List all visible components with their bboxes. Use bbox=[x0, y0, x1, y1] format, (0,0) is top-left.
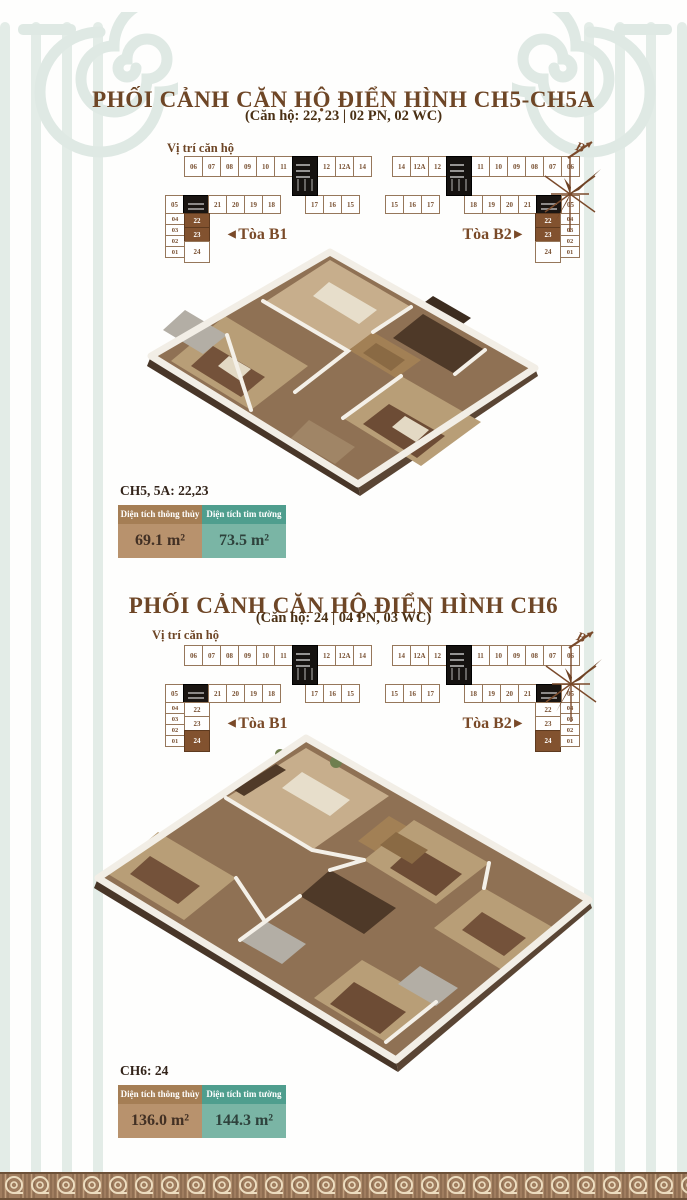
unit-cell-17: 17 bbox=[305, 195, 324, 214]
unit-cell-10: 10 bbox=[489, 645, 508, 666]
area-info-header: CH6: 24 bbox=[120, 1063, 288, 1079]
gross-area-column: Diện tích tim tường 73.5 m² bbox=[202, 505, 286, 558]
plate-row2-left: 21201918 bbox=[209, 196, 281, 214]
stair-core-icon bbox=[183, 195, 209, 214]
unit-cell-19: 19 bbox=[482, 195, 501, 214]
plate-row1-left: 060708091011 bbox=[185, 156, 293, 177]
plate-row1-left: 1412A12 bbox=[393, 645, 447, 666]
unit-cell-15: 15 bbox=[385, 684, 404, 703]
unit-cell-23: 23 bbox=[184, 227, 210, 242]
elevator-core-icon bbox=[292, 156, 318, 196]
gross-area-label: Diện tích tim tường bbox=[202, 1085, 286, 1104]
brochure-page: PHỐI CẢNH CĂN HỘ ĐIỂN HÌNH CH5-CH5A (Căn… bbox=[0, 0, 687, 1200]
unit-cell-12: 12 bbox=[428, 645, 447, 666]
unit-cell-19: 19 bbox=[482, 684, 501, 703]
core-shaft bbox=[280, 685, 306, 704]
unit-cell-20: 20 bbox=[226, 195, 245, 214]
elevator-core-icon bbox=[446, 156, 472, 196]
plate-row2-start: 05 bbox=[166, 196, 184, 214]
unit-cell-16: 16 bbox=[323, 195, 342, 214]
unit-cell-06: 06 bbox=[184, 156, 203, 177]
net-area-label: Diện tích thông thủy bbox=[118, 505, 202, 524]
unit-cell-17: 17 bbox=[421, 684, 440, 703]
unit-cell-17: 17 bbox=[305, 684, 324, 703]
gross-area-label: Diện tích tim tường bbox=[202, 505, 286, 524]
unit-cell-21: 21 bbox=[518, 195, 537, 214]
unit-cell-12: 12 bbox=[317, 645, 336, 666]
unit-cell-12A: 12A bbox=[335, 156, 354, 177]
unit-cell-15: 15 bbox=[341, 195, 360, 214]
core-shaft bbox=[280, 196, 306, 215]
unit-cell-21: 21 bbox=[518, 684, 537, 703]
unit-cell-11: 11 bbox=[471, 645, 490, 666]
unit-cell-20: 20 bbox=[500, 684, 519, 703]
area-info-ch6: CH6: 24 Diện tích thông thủy 136.0 m² Di… bbox=[118, 1063, 288, 1138]
unit-cell-07: 07 bbox=[202, 645, 221, 666]
unit-cell-09: 09 bbox=[507, 156, 526, 177]
unit-cell-06: 06 bbox=[184, 645, 203, 666]
unit-cell-16: 16 bbox=[403, 195, 422, 214]
core-shaft bbox=[439, 196, 465, 215]
scroll-frieze-border bbox=[0, 1172, 687, 1200]
unit-cell-22: 22 bbox=[184, 213, 210, 228]
unit-cell-17: 17 bbox=[421, 195, 440, 214]
unit-cell-09: 09 bbox=[238, 645, 257, 666]
unit-cell-19: 19 bbox=[244, 195, 263, 214]
unit-cell-15: 15 bbox=[341, 684, 360, 703]
net-area-label: Diện tích thông thủy bbox=[118, 1085, 202, 1104]
unit-cell-10: 10 bbox=[256, 645, 275, 666]
gross-area-column: Diện tích tim tường 144.3 m² bbox=[202, 1085, 286, 1138]
right-triangle-icon: ▶ bbox=[512, 229, 522, 240]
unit-cell-08: 08 bbox=[220, 156, 239, 177]
core-shaft bbox=[439, 685, 465, 704]
unit-cell-20: 20 bbox=[226, 684, 245, 703]
unit-cell-11: 11 bbox=[274, 156, 293, 177]
unit-cell-05: 05 bbox=[165, 195, 184, 214]
location-label: Vị trí căn hộ bbox=[167, 141, 234, 156]
unit-cell-12A: 12A bbox=[335, 645, 354, 666]
unit-cell-10: 10 bbox=[256, 156, 275, 177]
plate-row2-left: 21201918 bbox=[209, 685, 281, 703]
area-table: Diện tích thông thủy 136.0 m² Diện tích … bbox=[118, 1085, 288, 1138]
unit-cell-18: 18 bbox=[464, 684, 483, 703]
unit-cell-01: 01 bbox=[560, 246, 580, 258]
plate-row2-left: 151617 bbox=[386, 685, 440, 703]
unit-cell-09: 09 bbox=[507, 645, 526, 666]
unit-cell-21: 21 bbox=[208, 684, 227, 703]
area-info-ch5: CH5, 5A: 22,23 Diện tích thông thủy 69.1… bbox=[118, 483, 288, 558]
unit-cell-05: 05 bbox=[165, 684, 184, 703]
area-info-header: CH5, 5A: 22,23 bbox=[120, 483, 288, 499]
unit-cell-16: 16 bbox=[403, 684, 422, 703]
floor-plan-3d-ch5 bbox=[133, 244, 563, 500]
unit-cell-18: 18 bbox=[262, 195, 281, 214]
unit-cell-12A: 12A bbox=[410, 156, 429, 177]
unit-cell-11: 11 bbox=[471, 156, 490, 177]
unit-summary: (Căn hộ: 22, 23 | 02 PN, 02 WC) bbox=[0, 108, 687, 125]
unit-cell-09: 09 bbox=[238, 156, 257, 177]
unit-cell-14: 14 bbox=[392, 156, 411, 177]
compass-north-icon: B bbox=[541, 624, 607, 728]
plate-row1-left: 1412A12 bbox=[393, 156, 447, 177]
unit-cell-12: 12 bbox=[428, 156, 447, 177]
plate-row2-left: 151617 bbox=[386, 196, 440, 214]
unit-cell-18: 18 bbox=[464, 195, 483, 214]
unit-cell-22: 22 bbox=[184, 702, 210, 717]
floor-plan-3d-ch6 bbox=[84, 728, 604, 1072]
plate-row2-right: 171615 bbox=[306, 685, 360, 703]
unit-cell-18: 18 bbox=[262, 684, 281, 703]
location-label: Vị trí căn hộ bbox=[152, 628, 219, 643]
compass-north-icon: B bbox=[540, 134, 606, 238]
unit-cell-16: 16 bbox=[323, 684, 342, 703]
area-table: Diện tích thông thủy 69.1 m² Diện tích t… bbox=[118, 505, 288, 558]
unit-cell-12: 12 bbox=[317, 156, 336, 177]
unit-cell-10: 10 bbox=[489, 156, 508, 177]
elevator-core-icon bbox=[292, 645, 318, 685]
plate-row2-right: 18192021 bbox=[465, 685, 537, 703]
gross-area-value: 73.5 m² bbox=[202, 524, 286, 558]
unit-cell-12A: 12A bbox=[410, 645, 429, 666]
net-area-value: 69.1 m² bbox=[118, 524, 202, 558]
unit-cell-08: 08 bbox=[220, 645, 239, 666]
stair-core-icon bbox=[183, 684, 209, 703]
unit-cell-11: 11 bbox=[274, 645, 293, 666]
plate-row2-right: 171615 bbox=[306, 196, 360, 214]
net-area-column: Diện tích thông thủy 136.0 m² bbox=[118, 1085, 202, 1138]
net-area-value: 136.0 m² bbox=[118, 1104, 202, 1138]
plate-row2-start: 05 bbox=[166, 685, 184, 703]
unit-cell-07: 07 bbox=[202, 156, 221, 177]
gross-area-value: 144.3 m² bbox=[202, 1104, 286, 1138]
net-area-column: Diện tích thông thủy 69.1 m² bbox=[118, 505, 202, 558]
unit-cell-21: 21 bbox=[208, 195, 227, 214]
plate-row1-left: 060708091011 bbox=[185, 645, 293, 666]
unit-cell-20: 20 bbox=[500, 195, 519, 214]
unit-cell-14: 14 bbox=[392, 645, 411, 666]
unit-cell-19: 19 bbox=[244, 684, 263, 703]
elevator-core-icon bbox=[446, 645, 472, 685]
unit-cell-15: 15 bbox=[385, 195, 404, 214]
plate-row2-right: 18192021 bbox=[465, 196, 537, 214]
left-triangle-icon: ◀ bbox=[228, 229, 238, 240]
